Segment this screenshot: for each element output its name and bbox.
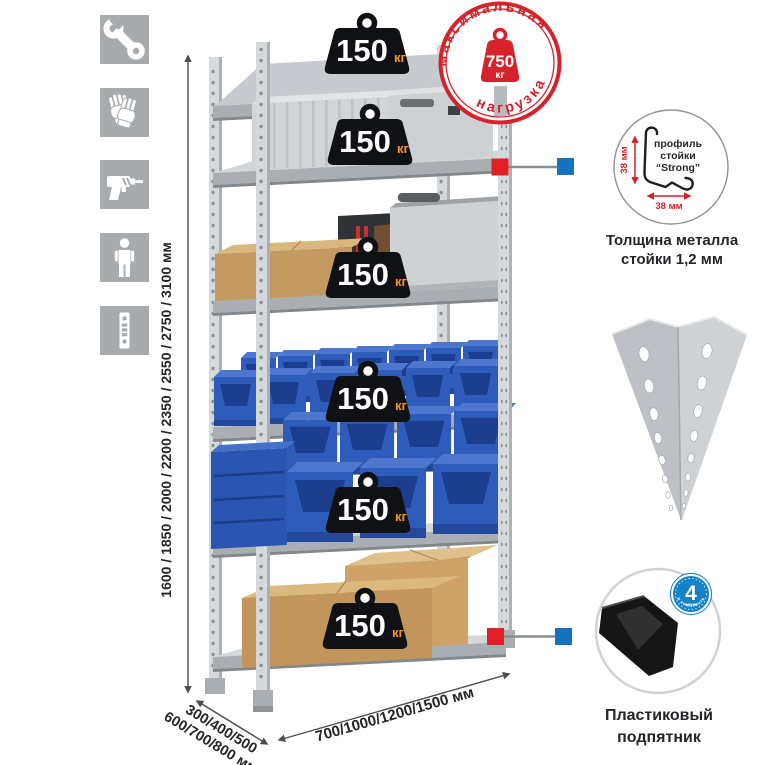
angle-post-picture — [612, 317, 747, 520]
qty-badge: 4 штуки в комплекте — [671, 574, 712, 615]
width-dim-label: 700/1000/1200/1500 мм — [314, 684, 476, 746]
load-value: 150 — [336, 33, 388, 68]
foot-detail: 4 штуки в комплекте Пластиковый подпятни… — [596, 569, 720, 746]
load-badge-1: 150 кг — [325, 16, 410, 75]
load-unit: кг — [395, 509, 408, 524]
profile-text-3: “Strong” — [656, 162, 700, 174]
marker-red-bottom — [487, 628, 504, 645]
load-value: 150 — [339, 124, 391, 159]
depth-dimension: 300/400/500 600/700/800 мм — [161, 694, 269, 765]
width-dimension: 700/1000/1200/1500 мм — [279, 674, 509, 745]
load-unit: кг — [395, 398, 408, 413]
foot-caption-2: подпятник — [617, 729, 702, 746]
profile-text-2: стойки — [660, 150, 695, 162]
profile-caption-1: Толщина металла — [606, 232, 739, 249]
height-dimension-label: 1600 / 1850 / 2000 / 2200 / 2350 / 2550 … — [158, 242, 174, 597]
stamp-unit: кг — [495, 70, 504, 81]
load-unit: кг — [395, 274, 408, 289]
profile-dim-vertical: 38 мм — [619, 146, 630, 173]
rack-post-front-left — [253, 42, 273, 712]
profile-detail: 38 мм 38 мм профиль стойки “Strong” Толщ… — [606, 110, 739, 268]
load-value: 150 — [334, 608, 386, 643]
load-value: 150 — [337, 257, 389, 292]
profile-caption-2: стойки 1,2 мм — [621, 251, 723, 268]
infographic-shelving-rack: 1600 / 1850 / 2000 / 2200 / 2350 / 2550 … — [0, 0, 765, 765]
profile-text-1: профиль — [654, 138, 702, 150]
load-unit: кг — [397, 141, 410, 156]
profile-dim-horizontal: 38 мм — [655, 201, 682, 212]
marker-blue-top — [557, 158, 574, 175]
height-dimension: 1600 / 1850 / 2000 / 2200 / 2350 / 2550 … — [158, 56, 188, 692]
stamp-value: 750 — [486, 52, 514, 71]
load-unit: кг — [392, 625, 405, 640]
scene: 1600 / 1850 / 2000 / 2200 / 2350 / 2550 … — [0, 0, 765, 765]
foot-caption-1: Пластиковый — [605, 707, 713, 724]
marker-blue-bottom — [555, 628, 572, 645]
load-value: 150 — [337, 381, 389, 416]
load-value: 150 — [337, 492, 389, 527]
marker-red-top — [492, 159, 509, 176]
load-unit: кг — [394, 50, 407, 65]
blue-crate — [211, 441, 295, 549]
